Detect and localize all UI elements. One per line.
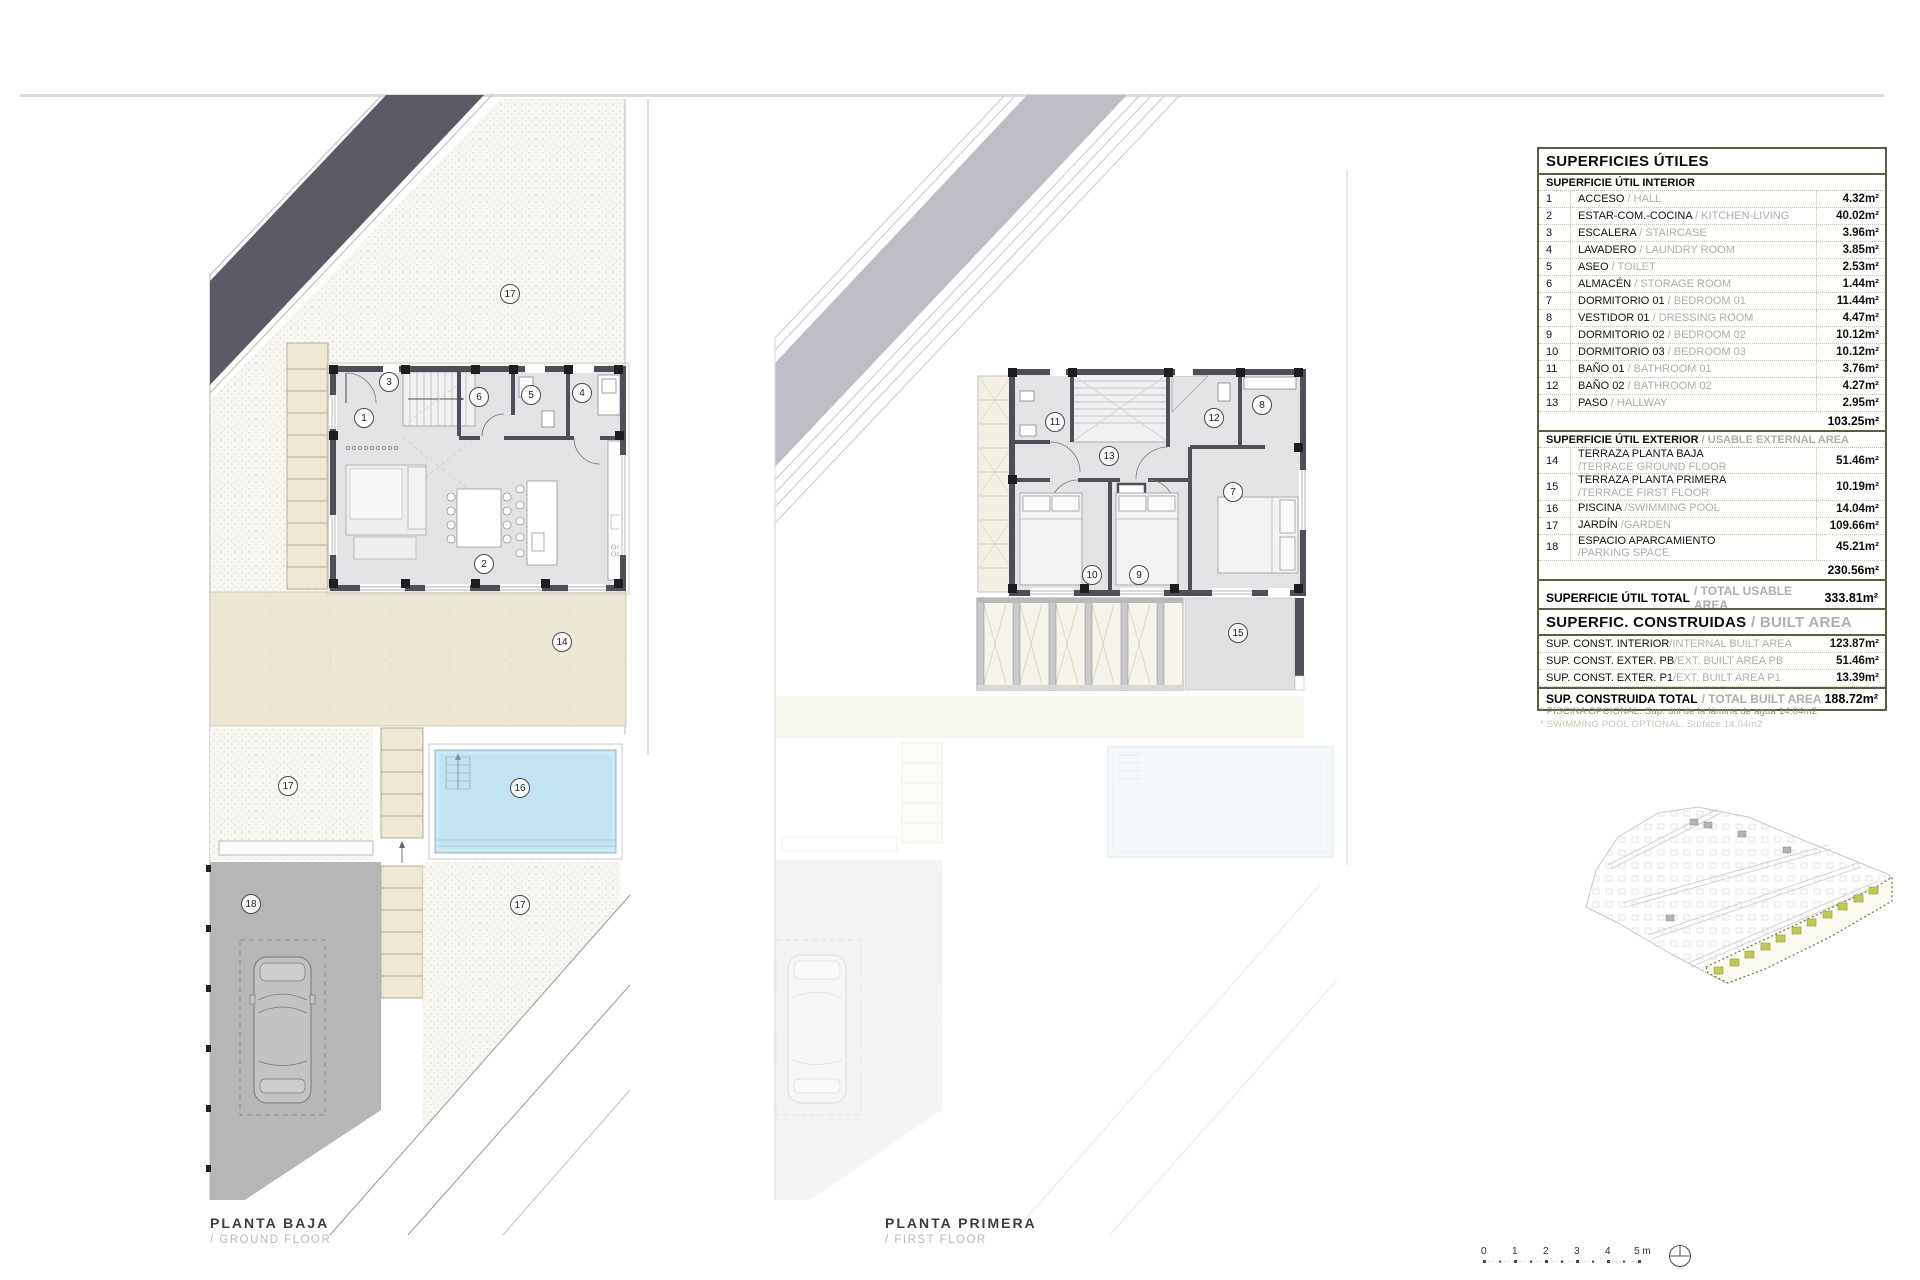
scale-tick-1: 1 — [1512, 1246, 1518, 1257]
site-location-map — [1578, 795, 1900, 1010]
room-label-bath-01: 11 — [1045, 412, 1065, 432]
usable-table-title: SUPERFICIES ÚTILES — [1539, 149, 1885, 175]
gf-parking — [210, 862, 381, 1200]
room-label-bedroom-03: 10 — [1082, 565, 1102, 585]
built-rows: SUP. CONST. INTERIOR/INTERNAL BUILT AREA… — [1539, 636, 1885, 687]
first-floor-title: PLANTA PRIMERA — [885, 1215, 1037, 1231]
gf-walkway — [219, 841, 373, 855]
exterior-subtotal: 230.56m² — [1539, 561, 1885, 581]
north-indicator-icon — [1670, 1246, 1691, 1267]
scale-dots — [1483, 1260, 1641, 1263]
gf-sofa — [346, 465, 426, 559]
room-label-toilet: 5 — [521, 385, 541, 405]
room-label-hall: 1 — [354, 408, 374, 428]
table-row: SUP. CONST. EXTER. PB/EXT. BUILT AREA PB… — [1539, 653, 1885, 670]
room-label-living: 2 — [474, 554, 494, 574]
first-floor-drawing — [720, 95, 1365, 1240]
interior-rows: 1ACCESO / HALL4.32m²2ESTAR-COM.-COCINA /… — [1539, 191, 1885, 412]
table-row: 10DORMITORIO 03 / BEDROOM 0310.12m² — [1539, 344, 1885, 361]
ff-stairs — [1072, 374, 1168, 442]
exterior-rows: 14TERRAZA PLANTA BAJA/TERRACE GROUND FLO… — [1539, 448, 1885, 561]
gf-terrace — [210, 592, 626, 726]
scale-tick-3: 3 — [1574, 1246, 1580, 1257]
table-row: 2ESTAR-COM.-COCINA / KITCHEN-LIVING40.02… — [1539, 208, 1885, 225]
first-floor-plan: 11 12 8 13 7 10 9 15 — [720, 95, 1365, 1240]
scale-tick-4: 4 — [1605, 1246, 1611, 1257]
gf-car — [250, 957, 315, 1103]
plan-sheet: 17 1 3 6 5 4 2 14 17 16 17 18 — [0, 0, 1920, 1280]
ff-terrace-15 — [1185, 598, 1304, 690]
table-row: 12BAÑO 02 / BATHROOM 024.27m² — [1539, 378, 1885, 395]
table-row: 11BAÑO 01 / BATHROOM 013.76m² — [1539, 361, 1885, 378]
first-floor-subtitle: / FIRST FLOOR — [885, 1234, 987, 1246]
ground-floor-drawing — [170, 95, 670, 1240]
scale-numbers: 0 1 2 3 4 5 m — [1481, 1246, 1651, 1257]
ground-floor-plan: 17 1 3 6 5 4 2 14 17 16 17 18 — [170, 95, 670, 1240]
table-row: 17JARDÍN /GARDEN109.66m² — [1539, 518, 1885, 535]
table-row: 5ASEO / TOILET2.53m² — [1539, 259, 1885, 276]
ff-pergola — [977, 598, 1183, 690]
table-row: 18ESPACIO APARCAMIENTO/PARKING SPACE45.2… — [1539, 535, 1885, 561]
ground-floor-title: PLANTA BAJA — [210, 1215, 329, 1231]
table-row: 4LAVADERO / LAUNDRY ROOM3.85m² — [1539, 242, 1885, 259]
site-map-drawing — [1578, 795, 1900, 1010]
scale-bar: 0 1 2 3 4 5 m — [1470, 1240, 1720, 1274]
room-label-garden-right: 17 — [510, 895, 530, 915]
scale-tick-2: 2 — [1543, 1246, 1549, 1257]
pool-footnote-es: * PISCINA OPCIONAL. Sup. útil de la lámi… — [1540, 706, 1817, 717]
scale-tick-5: 5 m — [1634, 1246, 1651, 1257]
table-row: 13PASO / HALLWAY2.95m² — [1539, 395, 1885, 412]
table-row: 15TERRAZA PLANTA PRIMERA/TERRACE FIRST F… — [1539, 474, 1885, 500]
gf-pool — [429, 744, 622, 859]
room-label-bedroom-02: 9 — [1129, 565, 1149, 585]
gf-dining-table — [447, 489, 511, 547]
table-row: SUP. CONST. EXTER. P1/EXT. BUILT AREA P1… — [1539, 670, 1885, 687]
ff-faint-context — [775, 697, 1337, 1235]
table-row: 8VESTIDOR 01 / DRESSING ROOM4.47m² — [1539, 310, 1885, 327]
room-label-bath-02: 12 — [1204, 408, 1224, 428]
scale-bar-drawing: 0 1 2 3 4 5 m — [1470, 1240, 1720, 1274]
pool-footnote-en: * SWIMMING POOL OPTIONAL. Surface 14.04m… — [1540, 719, 1762, 730]
room-label-garden-top: 17 — [500, 284, 520, 304]
room-label-dressing: 8 — [1252, 395, 1272, 415]
room-label-terrace-p1: 15 — [1228, 623, 1248, 643]
table-row: 14TERRAZA PLANTA BAJA/TERRACE GROUND FLO… — [1539, 448, 1885, 474]
table-row: 6ALMACÉN / STORAGE ROOM1.44m² — [1539, 276, 1885, 293]
ff-beds — [1020, 493, 1298, 585]
gf-west-steps — [287, 343, 328, 589]
room-label-staircase: 3 — [379, 372, 399, 392]
table-row: 9DORMITORIO 02 / BEDROOM 0210.12m² — [1539, 327, 1885, 344]
room-label-pool: 16 — [510, 778, 530, 798]
table-row: 7DORMITORIO 01 / BEDROOM 0111.44m² — [1539, 293, 1885, 310]
room-label-storage: 6 — [469, 387, 489, 407]
table-row: 1ACCESO / HALL4.32m² — [1539, 191, 1885, 208]
scale-tick-0: 0 — [1481, 1246, 1487, 1257]
table-row: 16PISCINA /SWIMMING POOL14.04m² — [1539, 501, 1885, 518]
table-row: SUP. CONST. INTERIOR/INTERNAL BUILT AREA… — [1539, 636, 1885, 653]
built-table-title: SUPERFIC. CONSTRUIDAS / BUILT AREA — [1539, 610, 1885, 636]
room-label-hallway: 13 — [1099, 446, 1119, 466]
room-label-garden-left: 17 — [278, 776, 298, 796]
room-label-terrace-gf: 14 — [552, 632, 572, 652]
usable-areas-table: SUPERFICIES ÚTILES SUPERFICIE ÚTIL INTER… — [1537, 147, 1887, 617]
ff-west-slats — [978, 376, 1011, 592]
interior-section-header: SUPERFICIE ÚTIL INTERIOR — [1539, 175, 1885, 191]
room-label-bedroom-01: 7 — [1223, 482, 1243, 502]
exterior-section-header: SUPERFICIE ÚTIL EXTERIOR / USABLE EXTERN… — [1539, 432, 1885, 448]
room-label-laundry: 4 — [572, 383, 592, 403]
ground-floor-subtitle: / GROUND FLOOR — [210, 1234, 331, 1246]
table-row: 3ESCALERA / STAIRCASE3.96m² — [1539, 225, 1885, 242]
room-label-parking: 18 — [241, 894, 261, 914]
built-areas-table: SUPERFIC. CONSTRUIDAS / BUILT AREA SUP. … — [1537, 608, 1887, 711]
interior-subtotal: 103.25m² — [1539, 412, 1885, 432]
